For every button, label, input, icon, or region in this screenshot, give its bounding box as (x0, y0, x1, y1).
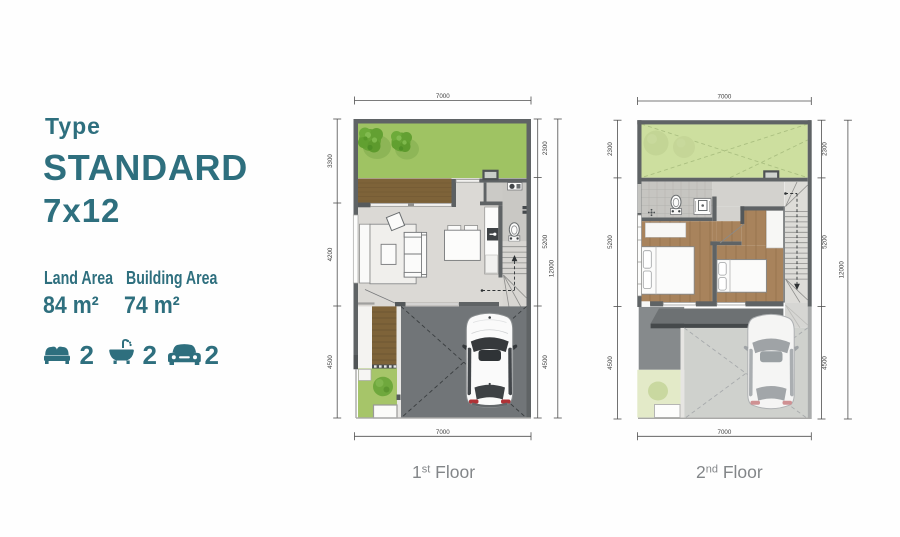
svg-text:5200: 5200 (607, 235, 614, 249)
svg-text:5200: 5200 (822, 235, 829, 249)
svg-text:2300: 2300 (542, 141, 549, 155)
svg-text:7000: 7000 (436, 429, 450, 436)
svg-text:2: 2 (80, 340, 94, 370)
svg-text:4500: 4500 (822, 356, 829, 370)
svg-text:12000: 12000 (549, 259, 556, 277)
svg-text:4500: 4500 (607, 356, 614, 370)
svg-text:2300: 2300 (822, 142, 829, 156)
svg-text:2300: 2300 (607, 142, 614, 156)
svg-text:4500: 4500 (542, 355, 549, 369)
svg-text:7000: 7000 (718, 94, 732, 101)
svg-text:12000: 12000 (838, 261, 845, 279)
svg-text:7000: 7000 (436, 93, 450, 100)
svg-text:4500: 4500 (327, 355, 334, 369)
svg-text:5200: 5200 (542, 234, 549, 248)
svg-text:7000: 7000 (718, 429, 732, 436)
svg-text:2: 2 (205, 340, 219, 370)
svg-text:2: 2 (143, 340, 157, 370)
svg-text:4200: 4200 (327, 247, 334, 261)
svg-text:3300: 3300 (327, 154, 334, 168)
